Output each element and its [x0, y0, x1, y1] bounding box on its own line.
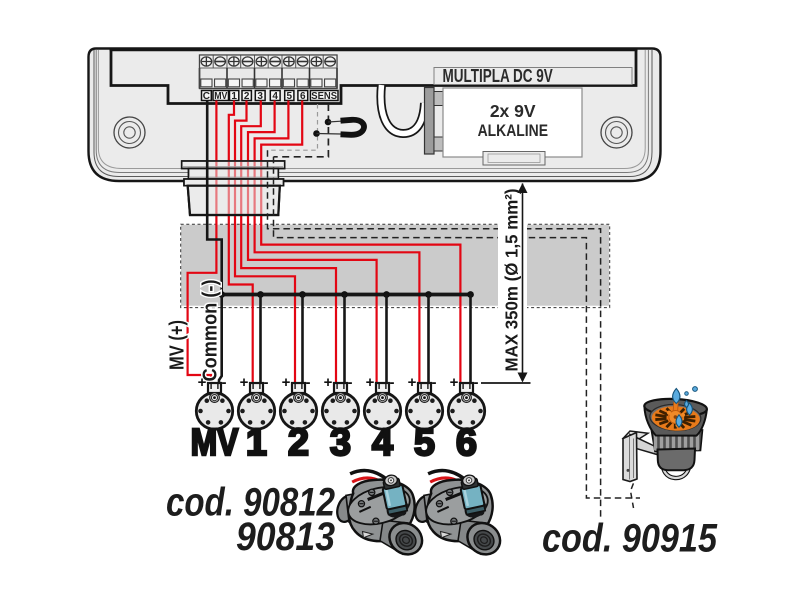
svg-text:+: + — [324, 374, 333, 391]
svg-text:6: 6 — [300, 91, 306, 102]
svg-text:4: 4 — [272, 91, 278, 102]
svg-text:+: + — [408, 374, 417, 391]
svg-text:-: - — [306, 374, 311, 391]
svg-text:MAX 350m (Ø 1,5 mm²): MAX 350m (Ø 1,5 mm²) — [502, 189, 522, 372]
svg-text:-: - — [264, 374, 269, 391]
svg-text:2: 2 — [288, 422, 309, 464]
svg-text:-: - — [474, 374, 479, 391]
svg-text:cod. 90915: cod. 90915 — [542, 517, 718, 561]
svg-text:Common (-): Common (-) — [200, 280, 222, 382]
svg-text:5: 5 — [287, 91, 293, 102]
svg-text:-: - — [348, 374, 353, 391]
svg-text:MV (+): MV (+) — [167, 320, 189, 370]
svg-text:MULTIPLA DC 9V: MULTIPLA DC 9V — [443, 66, 553, 87]
svg-text:90813: 90813 — [236, 515, 335, 559]
svg-text:SENS: SENS — [311, 91, 337, 102]
svg-text:ALKALINE: ALKALINE — [478, 122, 548, 141]
svg-text:2x 9V: 2x 9V — [490, 101, 536, 121]
svg-text:1: 1 — [246, 422, 267, 464]
svg-text:+: + — [366, 374, 375, 391]
svg-text:+: + — [240, 374, 249, 391]
svg-text:2: 2 — [244, 91, 250, 102]
svg-text:3: 3 — [257, 91, 263, 102]
svg-text:3: 3 — [330, 422, 351, 464]
svg-text:C: C — [203, 91, 210, 102]
svg-text:+: + — [198, 374, 207, 391]
svg-text:+: + — [450, 374, 459, 391]
svg-text:-: - — [432, 374, 437, 391]
svg-text:MV: MV — [191, 421, 239, 463]
svg-text:6: 6 — [456, 422, 477, 464]
svg-text:1: 1 — [231, 91, 237, 102]
svg-text:MV: MV — [214, 89, 228, 101]
svg-text:4: 4 — [372, 422, 393, 464]
svg-text:-: - — [222, 374, 227, 391]
svg-text:+: + — [282, 374, 291, 391]
svg-text:-: - — [390, 374, 395, 391]
svg-text:5: 5 — [414, 422, 435, 464]
